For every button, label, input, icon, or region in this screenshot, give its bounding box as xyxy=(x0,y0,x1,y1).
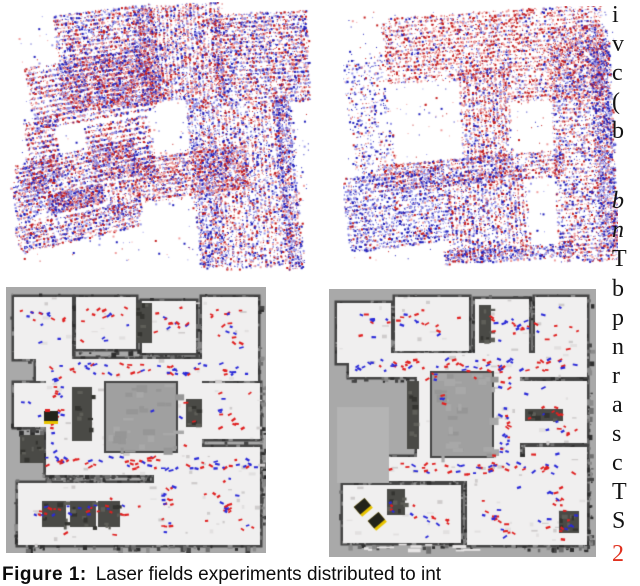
text-line-fragment: p xyxy=(612,305,624,332)
text-line-fragment: S xyxy=(612,508,625,535)
text-line-fragment: b xyxy=(612,276,624,303)
map-bottom-right xyxy=(329,289,596,557)
text-line-fragment: n xyxy=(612,334,624,361)
text-line-fragment: T xyxy=(612,246,627,273)
text-line-fragment: b xyxy=(612,188,624,215)
text-line-fragment: r xyxy=(612,363,620,390)
text-line-fragment: n xyxy=(612,217,624,244)
text-line-fragment: ( xyxy=(612,89,620,116)
text-line-fragment: T xyxy=(612,479,627,506)
text-line-fragment: a xyxy=(612,392,623,419)
figure-caption: Figure 1:Laser fields experiments distri… xyxy=(2,564,482,586)
figure-caption-text: Laser fields experiments distributed to … xyxy=(96,564,441,585)
figure-caption-label: Figure 1: xyxy=(2,564,87,585)
pointcloud-top-right xyxy=(343,6,618,272)
pointcloud-top-left xyxy=(8,2,318,280)
text-line-fragment: b xyxy=(612,118,624,145)
adjacent-text-column: ivc(bbnTbpnrascTS2 xyxy=(611,0,640,580)
map-bottom-left xyxy=(6,287,266,553)
text-line-fragment: c xyxy=(612,60,623,87)
text-line-fragment: s xyxy=(612,421,621,448)
text-line-fragment: c xyxy=(612,450,623,477)
text-line-fragment: v xyxy=(612,31,624,58)
text-line-fragment: i xyxy=(612,2,619,29)
citation-ref-2[interactable]: 2 xyxy=(612,541,624,568)
paper-page: { "figure": { "caption": { "label": "Fig… xyxy=(0,0,640,580)
